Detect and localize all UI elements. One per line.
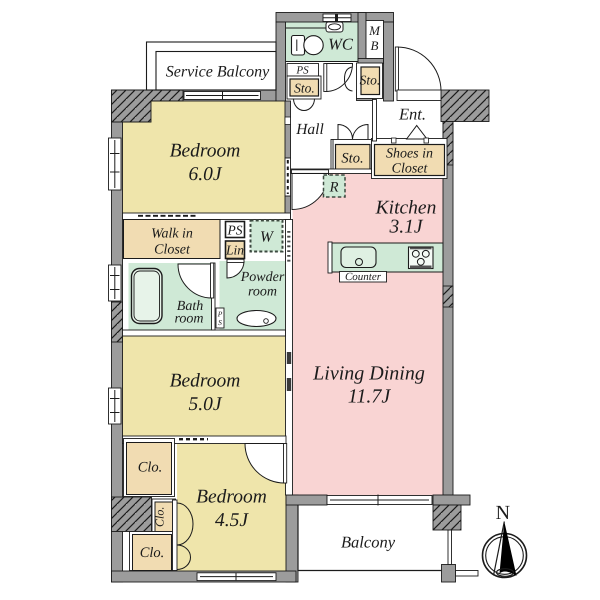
- svg-text:Bedroom: Bedroom: [170, 141, 241, 162]
- svg-text:S: S: [218, 318, 222, 327]
- svg-text:Bedroom: Bedroom: [196, 487, 267, 508]
- svg-text:6.0J: 6.0J: [188, 164, 222, 185]
- svg-text:Closet: Closet: [154, 243, 191, 258]
- svg-text:PS: PS: [295, 65, 309, 77]
- svg-text:Closet: Closet: [392, 162, 429, 177]
- svg-text:R: R: [329, 180, 339, 196]
- svg-text:Service Balcony: Service Balcony: [166, 64, 270, 81]
- svg-text:Ent.: Ent.: [398, 105, 426, 124]
- svg-text:B: B: [371, 38, 379, 53]
- svg-text:4.5J: 4.5J: [215, 510, 249, 531]
- svg-text:WC: WC: [328, 35, 354, 54]
- svg-text:room: room: [174, 312, 203, 327]
- svg-text:M: M: [368, 23, 381, 38]
- svg-text:Sto.: Sto.: [294, 81, 315, 96]
- svg-text:5.0J: 5.0J: [188, 394, 222, 415]
- svg-text:Clo.: Clo.: [140, 545, 165, 561]
- svg-text:PS: PS: [227, 223, 243, 238]
- svg-text:N: N: [496, 502, 510, 524]
- svg-text:3.1J: 3.1J: [388, 217, 423, 238]
- svg-text:Walk in: Walk in: [151, 227, 193, 242]
- svg-text:Kitchen: Kitchen: [375, 198, 437, 219]
- svg-text:room: room: [248, 285, 277, 300]
- svg-text:11.7J: 11.7J: [348, 386, 392, 408]
- svg-text:Sto.: Sto.: [360, 73, 381, 88]
- svg-text:Balcony: Balcony: [341, 533, 396, 552]
- svg-text:Bedroom: Bedroom: [170, 371, 241, 392]
- svg-text:Hall: Hall: [295, 121, 324, 138]
- svg-text:Powder: Powder: [240, 270, 285, 285]
- svg-text:Shoes in: Shoes in: [386, 147, 433, 162]
- svg-text:Counter: Counter: [345, 271, 382, 283]
- svg-text:Lin: Lin: [225, 243, 244, 258]
- svg-text:W: W: [260, 229, 275, 246]
- svg-text:Clo.: Clo.: [138, 460, 163, 476]
- svg-text:Sto.: Sto.: [341, 151, 363, 167]
- svg-text:Living Dining: Living Dining: [312, 363, 425, 385]
- svg-text:Clo.: Clo.: [153, 507, 167, 527]
